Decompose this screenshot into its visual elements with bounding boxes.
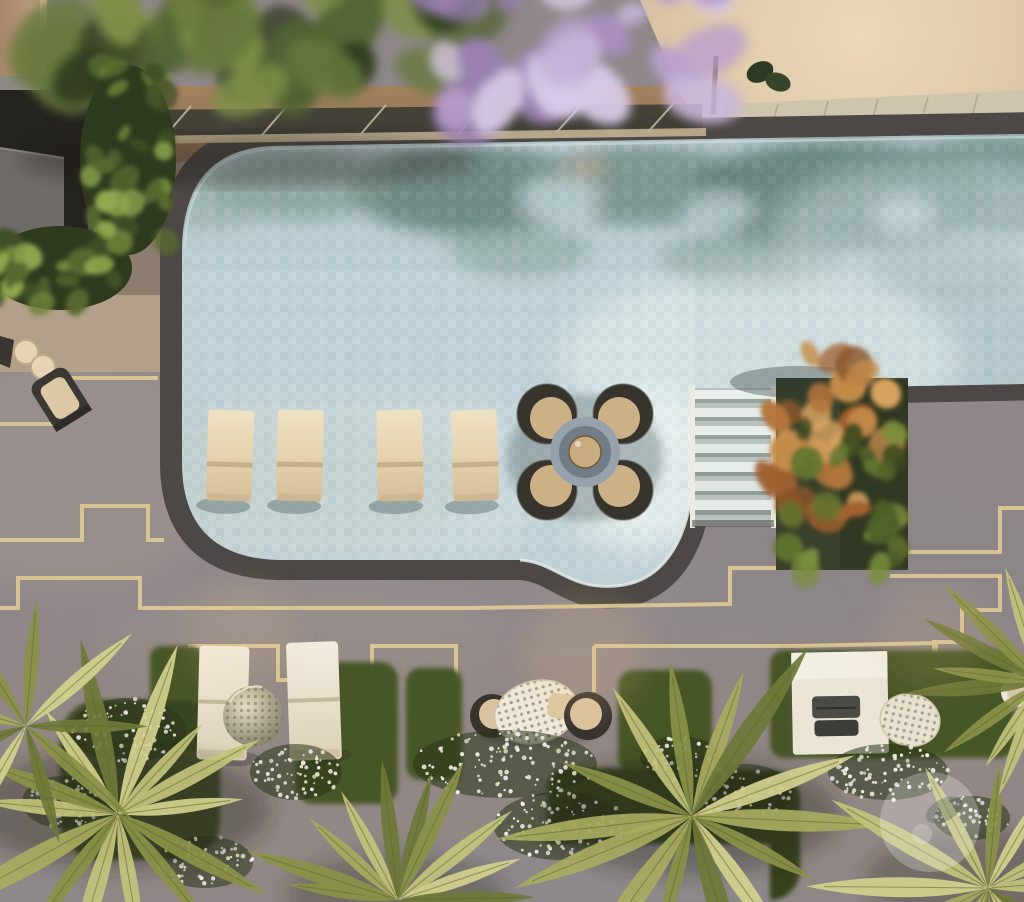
flower: [564, 741, 568, 745]
flower: [490, 760, 493, 763]
flower: [516, 732, 521, 737]
flower: [468, 738, 470, 740]
flower: [511, 737, 513, 739]
flower: [451, 737, 454, 740]
flower: [536, 778, 539, 781]
flower: [883, 772, 886, 775]
flower: [669, 738, 673, 742]
flower: [531, 817, 534, 820]
flower: [504, 770, 509, 775]
flower: [520, 824, 525, 829]
flower: [173, 733, 176, 736]
flower: [510, 755, 513, 758]
flower: [327, 780, 331, 784]
flower: [552, 762, 555, 765]
flower: [851, 791, 855, 795]
flower: [945, 768, 949, 772]
flower: [164, 730, 168, 734]
flower: [980, 801, 984, 805]
daybed: [787, 651, 889, 755]
flower: [590, 754, 593, 757]
flower: [291, 774, 293, 776]
flower: [497, 747, 499, 749]
flower: [277, 774, 281, 778]
flower: [253, 761, 255, 763]
flower: [124, 733, 128, 737]
flower: [900, 768, 904, 772]
flower: [572, 771, 577, 776]
flower: [269, 759, 273, 763]
flower: [502, 745, 507, 750]
flower: [515, 745, 519, 749]
flower: [561, 744, 564, 747]
flower: [315, 772, 320, 777]
flower: [867, 776, 871, 780]
flower: [445, 781, 447, 783]
flower: [169, 729, 171, 731]
pool-deck-rendering: [0, 0, 1024, 902]
flower: [508, 731, 510, 733]
sunken-lounge: [507, 384, 663, 522]
flower: [313, 782, 315, 784]
flower: [503, 776, 508, 781]
flower: [556, 749, 561, 754]
flower: [271, 778, 274, 781]
flower: [202, 881, 206, 885]
flower: [336, 763, 339, 766]
flower: [503, 789, 505, 791]
flower: [524, 809, 526, 811]
flower: [865, 748, 869, 752]
flower: [259, 760, 263, 764]
flower: [540, 844, 542, 846]
flower: [315, 761, 318, 764]
flower: [896, 764, 900, 768]
flower: [267, 777, 271, 781]
flower: [271, 768, 275, 772]
flower-cluster: [250, 744, 342, 800]
flower: [475, 752, 479, 756]
flower: [453, 767, 457, 771]
flower: [847, 789, 849, 791]
flower: [301, 761, 306, 766]
flower: [547, 844, 551, 848]
flower: [249, 859, 252, 862]
flower: [183, 869, 185, 871]
flower: [881, 782, 883, 784]
flower: [181, 875, 184, 878]
flower: [236, 864, 239, 867]
flower: [438, 747, 442, 751]
flower: [900, 754, 903, 757]
flower: [572, 751, 576, 755]
flower: [328, 762, 331, 765]
flower: [551, 783, 553, 785]
flower: [164, 727, 166, 729]
flower: [481, 793, 483, 795]
flower: [529, 757, 532, 760]
flower: [867, 768, 870, 771]
flower: [285, 795, 288, 798]
flower: [254, 778, 258, 782]
flower: [303, 754, 305, 756]
flower: [508, 829, 510, 831]
flower: [534, 784, 536, 786]
flower: [836, 780, 839, 783]
flower: [266, 772, 270, 776]
flower: [481, 764, 483, 766]
flower: [440, 776, 442, 778]
flower: [142, 704, 146, 708]
flower: [936, 762, 938, 764]
flower: [851, 780, 854, 783]
flower: [124, 702, 126, 704]
flower: [283, 781, 287, 785]
flower: [513, 817, 515, 819]
flower: [457, 733, 460, 736]
flower: [302, 787, 305, 790]
flower: [328, 769, 333, 774]
flower: [236, 854, 240, 858]
flower: [928, 768, 930, 770]
flower: [695, 753, 697, 755]
flower: [859, 755, 864, 760]
flower: [503, 756, 505, 758]
flower: [563, 765, 568, 770]
flower: [860, 771, 864, 775]
flower: [106, 713, 108, 715]
flower: [499, 733, 501, 735]
flower: [319, 759, 321, 761]
flower: [884, 780, 887, 783]
flower: [532, 799, 534, 801]
flower: [869, 752, 871, 754]
flower: [84, 739, 86, 741]
flower: [498, 770, 503, 775]
flower: [542, 742, 547, 747]
flower: [497, 813, 500, 816]
flower: [477, 775, 480, 778]
flower: [296, 793, 298, 795]
flower: [226, 856, 230, 860]
flower: [264, 779, 267, 782]
flower: [943, 766, 945, 768]
flower: [300, 765, 304, 769]
flower: [304, 780, 307, 783]
flower-bed-base: [250, 744, 342, 800]
flower: [881, 749, 884, 752]
flower: [528, 852, 532, 856]
flower: [872, 781, 875, 784]
flower: [1007, 823, 1009, 825]
flower: [121, 714, 123, 716]
flower: [460, 752, 464, 756]
flower: [119, 744, 124, 749]
flower: [881, 758, 885, 762]
flower: [865, 778, 868, 781]
flower: [528, 824, 532, 828]
flower: [183, 866, 186, 869]
flower: [880, 744, 883, 747]
flower: [512, 728, 516, 732]
flower: [830, 776, 835, 781]
flower: [874, 781, 877, 784]
flower: [456, 791, 459, 794]
lattice-dome: [223, 686, 283, 746]
flower: [230, 856, 232, 858]
flower: [508, 789, 512, 793]
flower: [115, 705, 117, 707]
flower: [464, 739, 469, 744]
flower: [489, 746, 494, 751]
flower: [521, 801, 523, 803]
flower: [505, 738, 509, 742]
flower: [83, 714, 87, 718]
flower: [293, 781, 295, 783]
flower: [925, 753, 929, 757]
flower: [909, 752, 911, 754]
fire-pit-table: [550, 417, 620, 487]
flower: [846, 787, 848, 789]
flower: [321, 777, 323, 779]
flower: [894, 768, 898, 772]
flower: [553, 766, 555, 768]
flower: [76, 735, 81, 740]
flower: [276, 763, 279, 766]
flower: [845, 783, 848, 786]
flower: [564, 752, 569, 757]
flower: [477, 789, 481, 793]
flower: [921, 755, 924, 758]
flower: [422, 765, 427, 770]
flower: [198, 875, 202, 879]
flower: [841, 769, 844, 772]
flower: [546, 745, 549, 748]
flower: [552, 773, 554, 775]
flower: [531, 761, 535, 765]
flower: [906, 759, 910, 763]
flower: [919, 749, 922, 752]
flower: [291, 791, 294, 794]
step-rail-left: [690, 386, 695, 528]
flower: [304, 775, 307, 778]
flower: [665, 744, 670, 749]
flower: [334, 772, 338, 776]
flower: [315, 757, 318, 760]
flower: [531, 808, 533, 810]
flower: [671, 745, 673, 747]
flower: [280, 751, 284, 755]
flower: [133, 697, 137, 701]
flower: [284, 759, 286, 761]
flower: [503, 749, 508, 754]
flower: [496, 751, 498, 753]
flower: [332, 785, 336, 789]
flower: [567, 749, 569, 751]
flower: [276, 789, 279, 792]
flower: [517, 820, 520, 823]
flower: [585, 751, 589, 755]
flower: [525, 736, 529, 740]
flower: [909, 745, 914, 750]
flower: [893, 757, 897, 761]
flower: [475, 734, 477, 736]
flower: [428, 764, 431, 767]
flower: [108, 716, 110, 718]
flower: [697, 742, 701, 746]
flower: [294, 796, 298, 800]
flower: [522, 755, 527, 760]
flower: [498, 793, 503, 798]
flower: [109, 706, 112, 709]
flower: [863, 771, 866, 774]
flower: [310, 788, 314, 792]
flower: [541, 736, 545, 740]
flower: [860, 795, 864, 799]
flower: [906, 764, 910, 768]
flower: [110, 715, 112, 717]
flower: [527, 775, 532, 780]
flower: [304, 765, 308, 769]
flower: [241, 854, 246, 859]
flower: [529, 747, 532, 750]
flower: [211, 882, 213, 884]
flower: [551, 778, 554, 781]
flower: [237, 859, 239, 861]
flower: [171, 721, 175, 725]
daybed-cushion: [814, 720, 858, 737]
flower: [449, 765, 453, 769]
flower: [123, 710, 128, 715]
flower: [276, 785, 280, 789]
flower: [511, 825, 514, 828]
flower: [535, 850, 539, 854]
watermark-logo: [880, 772, 980, 872]
flower: [299, 773, 302, 776]
flower: [154, 748, 157, 751]
flower: [501, 758, 505, 762]
flower: [557, 780, 560, 783]
flower: [861, 790, 864, 793]
flower: [287, 773, 289, 775]
flower: [475, 766, 477, 768]
flower: [278, 793, 283, 798]
flower: [521, 849, 524, 852]
flower: [559, 769, 561, 771]
flower: [483, 764, 486, 767]
flower: [256, 770, 260, 774]
flower: [880, 793, 882, 795]
flower: [255, 763, 258, 766]
flower: [525, 811, 527, 813]
flower: [425, 772, 428, 775]
flower: [309, 749, 313, 753]
flower: [490, 755, 493, 758]
flower: [321, 750, 325, 754]
rendering-canvas: [0, 0, 1024, 902]
flower: [848, 774, 852, 778]
flower: [431, 766, 434, 769]
flower: [900, 779, 902, 781]
flower: [162, 717, 165, 720]
flower: [514, 732, 516, 734]
flower: [500, 774, 503, 777]
flower: [288, 758, 291, 761]
flower: [532, 794, 535, 797]
flower: [535, 733, 538, 736]
flower: [317, 766, 320, 769]
flower: [870, 792, 875, 797]
flower: [912, 766, 914, 768]
flower: [985, 819, 988, 822]
flower: [284, 748, 287, 751]
flower: [546, 851, 550, 855]
flower: [499, 751, 501, 753]
flower: [919, 768, 922, 771]
flower: [304, 791, 307, 794]
flower: [297, 772, 299, 774]
flower: [977, 798, 981, 802]
flower: [211, 876, 215, 880]
flower: [314, 793, 317, 796]
flower: [134, 702, 136, 704]
flower: [867, 756, 869, 758]
flower: [478, 778, 481, 781]
flower: [497, 782, 499, 784]
flower: [420, 750, 423, 753]
flower: [478, 759, 480, 761]
